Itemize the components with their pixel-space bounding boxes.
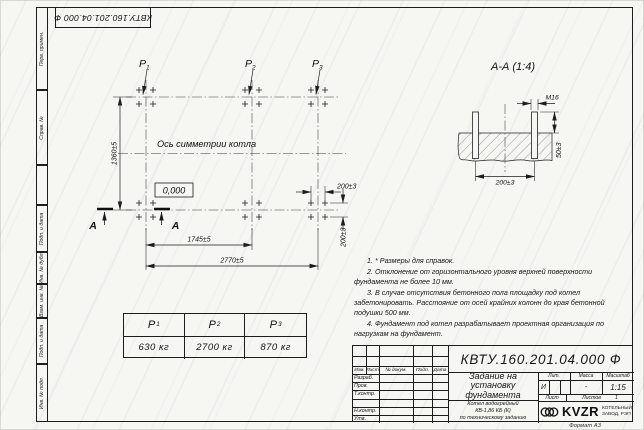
scale-value: 1:15 (602, 380, 634, 394)
lit-value: И (538, 380, 549, 394)
load-table: P1 P2 P3 630 кг 2700 кг 870 кг (123, 313, 307, 358)
drawing-sheet: Перв. примен. Справ. № Подп. и дата Инв.… (0, 0, 644, 430)
dim-bolt-spacing-200: 200±3 (476, 161, 535, 187)
doc-number: КВТУ.160.201.04.000 Ф (448, 346, 634, 372)
note-line: 1. * Размеры для справок. (354, 256, 630, 266)
section-letter-a1: А (88, 220, 97, 232)
section-title: А-А (1:4) (490, 61, 535, 73)
load-table-value: 870 кг (245, 337, 306, 360)
role-prov: Пров. (354, 382, 379, 390)
sheet-label: Лист (538, 394, 566, 401)
dim-bolt-x-200: 200±3 (296, 184, 357, 201)
svg-text:1745±5: 1745±5 (187, 237, 210, 244)
role-razrab: Разраб. (354, 374, 379, 382)
drawing-title: Задание на установку фундамента (448, 372, 538, 400)
svg-text:200±3: 200±3 (336, 184, 357, 191)
dim-bolt-y-200: 200±3 (330, 189, 348, 248)
scale-header: Масштаб (602, 372, 634, 380)
sheets-label: Листов (582, 395, 601, 401)
plan-centerlines (118, 80, 346, 230)
role-empty (354, 399, 379, 407)
symmetry-axis-label: Ось симметрии котла (157, 139, 256, 149)
load-table-value: 630 кг (124, 337, 185, 360)
section-cut-marks: А А (88, 209, 179, 232)
svg-text:200±3: 200±3 (341, 227, 348, 248)
rev-header-podp: Подп. (413, 366, 432, 374)
svg-text:200±3: 200±3 (495, 180, 515, 187)
rev-header-list: Лист (366, 366, 379, 374)
role-tkontr: Т.контр. (354, 390, 379, 398)
leader-label-p2: P2 (245, 58, 256, 72)
role-utv: Утв. (354, 415, 379, 423)
dim-thread-m16: M16 (517, 95, 559, 111)
object-description: Котел водогрейный КВ-1,86 КБ (К) по техн… (448, 400, 538, 423)
logo-text: KVZR (562, 404, 599, 419)
mass-value: - (570, 380, 602, 394)
elevation-value: 0,000 (163, 186, 186, 196)
role-nkontr: Н.контр. (354, 407, 379, 415)
load-table-header: P1 (124, 314, 185, 337)
leader-label-p1: P1 (139, 58, 150, 72)
kvzr-coil-icon (540, 403, 559, 421)
title-block: Изм. Лист № докум. Подп. Дата Разраб. Пр… (352, 345, 633, 422)
company-logo: KVZR КОТЕЛЬНЫЙ ЗАВОД, РЭП (540, 402, 632, 421)
load-leaders (143, 70, 320, 95)
technical-notes: 1. * Размеры для справок. 2. Отклонение … (354, 256, 630, 340)
note-line: 3. В случае отсутствия бетонного пола пл… (354, 288, 630, 318)
load-table-header: P2 (185, 314, 246, 337)
rev-header-dokum: № докум. (379, 366, 413, 374)
svg-text:M16: M16 (546, 95, 559, 102)
section-letter-a2: А (171, 220, 180, 232)
note-line: 4. Фундамент под котел разрабатывает про… (354, 319, 630, 339)
svg-text:2770±5: 2770±5 (219, 258, 243, 265)
svg-text:50±3: 50±3 (556, 142, 563, 158)
elevation-mark: 0,000 (155, 183, 193, 197)
leader-label-p3: P3 (312, 58, 323, 72)
rev-header-data: Дата (432, 366, 448, 374)
svg-text:1360±5: 1360±5 (112, 142, 119, 165)
logo-caption: КОТЕЛЬНЫЙ ЗАВОД, РЭП (602, 406, 632, 418)
rev-header-izm: Изм. (353, 366, 366, 374)
note-line: 2. Отклонение от горизонтального уровня … (354, 267, 630, 287)
mass-header: Масса (570, 372, 602, 380)
dim-span-2770: 2770±5 (146, 228, 318, 270)
lit-header: Лит. (538, 372, 570, 380)
sheets-cell: Листов 1 (566, 394, 634, 401)
load-table-value: 2700 кг (185, 337, 246, 360)
format-label: Формат А3 (520, 423, 644, 429)
load-table-header: P3 (245, 314, 306, 337)
sheets-value: 1 (615, 395, 618, 401)
